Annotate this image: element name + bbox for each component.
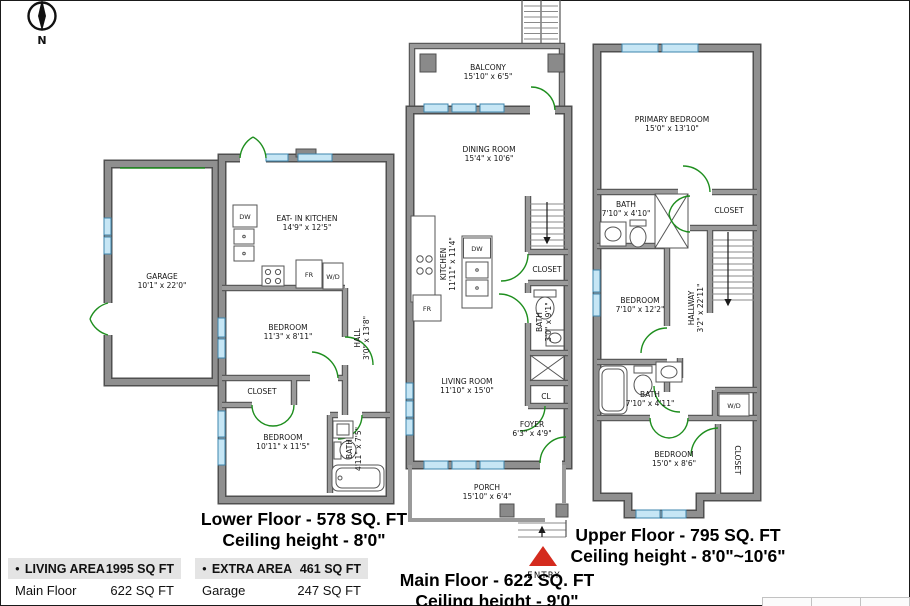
- upper-bath1-fixtures: [600, 220, 646, 247]
- row-value: 247 SQ FT: [297, 583, 361, 598]
- fixture-label-fr: FR: [305, 271, 314, 279]
- room-dims-living: 11'10" x 15'0": [440, 386, 494, 395]
- room-dims-bath-lower: 4'11" x 7'5": [354, 427, 363, 471]
- fixture-label-dw: DW: [239, 213, 251, 221]
- room-label-closet1: CLOSET: [714, 206, 744, 215]
- room-label-closet2: CLOSET: [733, 445, 742, 475]
- fixture-label-fr-main: FR: [423, 305, 432, 313]
- upper-stairs: [712, 232, 755, 305]
- room-label-bath2: BATH: [640, 390, 660, 399]
- main-floor-caption-line2: Ceiling height - 9'0": [377, 591, 617, 606]
- clipped-toolbar-cell: [812, 598, 861, 606]
- room-dims-primary: 15'0" x 13'10": [645, 124, 699, 133]
- room-label-bedroom2-upper: BEDROOM: [654, 450, 693, 459]
- room-label-porch: PORCH: [474, 483, 500, 492]
- upper-floor-caption: Upper Floor - 795 SQ. FT Ceiling height …: [558, 525, 798, 567]
- room-label-bedroom1: BEDROOM: [268, 323, 307, 332]
- room-label-bath-main: BATH: [535, 312, 544, 332]
- room-dims-foyer: 6'3" x 4'9": [512, 429, 551, 438]
- living-area-column: ● LIVING AREA 1995 SQ FT Main Floor 622 …: [8, 558, 181, 606]
- main-floor-caption: Main Floor - 622 SQ. FT Ceiling height -…: [377, 570, 617, 606]
- extra-area-header-label: EXTRA AREA: [212, 562, 292, 576]
- row-value: 622 SQ FT: [110, 583, 174, 598]
- compass-n-label: N: [37, 34, 46, 47]
- room-dims-garage: 10'1" x 22'0": [138, 281, 187, 290]
- row-label: Garage: [202, 583, 245, 598]
- fixture-label-wd-upper: W/D: [727, 402, 741, 410]
- room-dims-bedroom2-upper: 15'0" x 8'6": [652, 459, 696, 468]
- room-dims-bedroom1: 11'3" x 8'11": [264, 332, 313, 341]
- extra-area-header: ● EXTRA AREA 461 SQ FT: [195, 558, 368, 579]
- clipped-toolbar: [762, 597, 910, 606]
- living-area-header-value: 1995 SQ FT: [106, 562, 174, 576]
- room-dims-dining: 15'4" x 10'6": [465, 154, 514, 163]
- room-dims-porch: 15'10" x 6'4": [463, 492, 512, 501]
- room-label-bath-lower: BATH: [345, 439, 354, 459]
- room-label-closet: CLOSET: [247, 387, 277, 396]
- table-row: Upper Floor 795 SQ FT: [8, 601, 181, 606]
- area-legend-table: ● LIVING AREA 1995 SQ FT Main Floor 622 …: [8, 558, 368, 606]
- room-label-foyer: FOYER: [520, 420, 544, 429]
- lower-floor-plan: GARAGE 10'1" x 22'0" EAT- IN KITCHEN 14'…: [90, 137, 390, 500]
- room-label-kitchen: KITCHEN: [439, 248, 448, 281]
- bullet-icon: ●: [202, 564, 207, 573]
- lower-floor-caption-line2: Ceiling height - 8'0": [184, 530, 424, 551]
- table-row: Porch 96 SQ FT: [195, 601, 368, 606]
- main-top-stairs: [522, 0, 560, 44]
- lower-floor-caption: Lower Floor - 578 SQ. FT Ceiling height …: [184, 509, 424, 551]
- lower-floor-caption-line1: Lower Floor - 578 SQ. FT: [184, 509, 424, 530]
- main-floor-plan: ENTRY BALCONY 15'10" x 6'5" DINING ROOM …: [406, 0, 568, 581]
- room-dims-bedroom1-upper: 7'10" x 12'2": [616, 305, 665, 314]
- upper-floor-caption-line1: Upper Floor - 795 SQ. FT: [558, 525, 798, 546]
- room-label-bath1: BATH: [616, 200, 636, 209]
- compass-icon: N: [29, 0, 56, 47]
- clipped-toolbar-cell: [763, 598, 812, 606]
- room-dims-bath-main: 3'0" x 9'1": [544, 302, 553, 341]
- table-row: Garage 247 SQ FT: [195, 579, 368, 601]
- row-label: Main Floor: [15, 583, 76, 598]
- upper-floor-plan: PRIMARY BEDROOM 15'0" x 13'10" BATH 7'10…: [593, 44, 757, 518]
- room-label-hall: HALL: [353, 328, 362, 348]
- extra-area-column: ● EXTRA AREA 461 SQ FT Garage 247 SQ FT …: [195, 558, 368, 606]
- fixture-label-wd: W/D: [326, 273, 340, 281]
- table-row: Main Floor 622 SQ FT: [8, 579, 181, 601]
- room-dims-bedroom2: 10'11" x 11'5": [256, 442, 310, 451]
- bullet-icon: ●: [15, 564, 20, 573]
- clipped-toolbar-cell: [861, 598, 909, 606]
- room-dims-eat-in-kitchen: 14'9" x 12'5": [283, 223, 332, 232]
- room-label-primary: PRIMARY BEDROOM: [635, 115, 709, 124]
- room-label-bedroom2: BEDROOM: [263, 433, 302, 442]
- living-area-header-label: LIVING AREA: [25, 562, 105, 576]
- room-label-bedroom1-upper: BEDROOM: [620, 296, 659, 305]
- room-dims-hall: 3'0" x 13'8": [362, 316, 371, 360]
- main-mid-stairs: [530, 202, 566, 246]
- floor-plan-svg: N: [0, 0, 910, 606]
- room-dims-bath1: 7'10" x 4'10": [602, 209, 651, 218]
- room-label-balcony: BALCONY: [470, 63, 506, 72]
- room-label-cl: CL: [541, 392, 551, 401]
- floor-plan-sheet: N: [0, 0, 910, 606]
- extra-area-header-value: 461 SQ FT: [300, 562, 361, 576]
- room-dims-balcony: 15'10" x 6'5": [464, 72, 513, 81]
- room-dims-hallway: 3'2" x 22'11": [696, 284, 705, 333]
- upper-floor-caption-line2: Ceiling height - 8'0"~10'6": [558, 546, 798, 567]
- room-label-living: LIVING ROOM: [441, 377, 492, 386]
- room-label-garage: GARAGE: [146, 272, 178, 281]
- room-dims-bath2: 7'10" x 4'11": [626, 399, 675, 408]
- main-floor-caption-line1: Main Floor - 622 SQ. FT: [377, 570, 617, 591]
- living-area-header: ● LIVING AREA 1995 SQ FT: [8, 558, 181, 579]
- room-label-eat-in-kitchen: EAT- IN KITCHEN: [277, 214, 338, 223]
- fixture-label-dw-main: DW: [471, 245, 483, 253]
- room-dims-kitchen: 11'11" x 11'4": [448, 237, 457, 291]
- room-label-closet-main: CLOSET: [532, 265, 562, 274]
- room-label-hallway: HALLWAY: [687, 290, 696, 325]
- room-label-dining: DINING ROOM: [462, 145, 515, 154]
